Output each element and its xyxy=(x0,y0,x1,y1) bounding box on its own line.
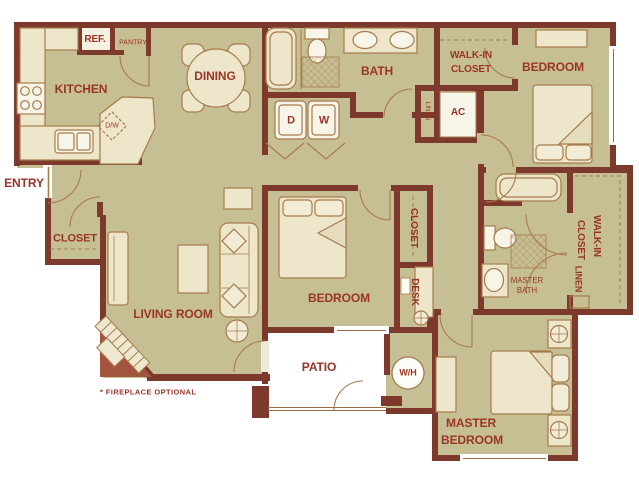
label-bedroom-top: BEDROOM xyxy=(522,61,584,73)
label-bedroom-mid: BEDROOM xyxy=(308,292,370,304)
label-master-linen: LINEN xyxy=(574,266,583,293)
coffee-table-icon xyxy=(178,245,208,293)
pillow-icon xyxy=(552,384,569,411)
stove-icon xyxy=(17,83,45,114)
bath-sink-icon xyxy=(353,32,377,49)
bath-sink-icon xyxy=(485,269,504,292)
label-walkin-top-1: WALK-IN xyxy=(450,51,492,61)
label-patio: PATIO xyxy=(302,361,336,373)
label-closet-entry: CLOSET xyxy=(53,234,97,245)
dresser-icon xyxy=(436,357,456,412)
label-ref: REF. xyxy=(84,35,105,45)
label-water-heater: W/H xyxy=(399,369,416,378)
label-dining: DINING xyxy=(194,70,235,82)
pillow-icon xyxy=(315,200,343,216)
label-dishwasher: D/W xyxy=(105,123,119,130)
chaise-icon xyxy=(108,232,128,305)
label-master-closet-2: CLOSET xyxy=(575,220,585,260)
patio-exit-door xyxy=(334,381,363,410)
label-living-room: LIVING ROOM xyxy=(133,308,213,320)
pillow-icon xyxy=(536,145,563,160)
shower-icon xyxy=(302,57,339,87)
pillow-icon xyxy=(283,200,312,216)
label-washer: W xyxy=(319,116,329,127)
patio-post-right xyxy=(381,396,402,406)
label-master-closet-1: WALK-IN xyxy=(591,215,601,257)
toilet-icon xyxy=(484,226,495,250)
patio-post-left xyxy=(252,386,269,418)
label-entry: ENTRY xyxy=(4,177,44,189)
pillow-icon xyxy=(552,355,569,382)
label-master-bath-1: MASTER xyxy=(511,277,544,285)
label-kitchen: KITCHEN xyxy=(55,83,108,95)
label-master-bath-2: BATH xyxy=(517,287,537,295)
label-walkin-top-2: CLOSET xyxy=(451,65,491,75)
label-linen-top: LINEN xyxy=(424,102,430,120)
label-desk: DESK xyxy=(409,278,419,305)
label-ac: AC xyxy=(451,108,465,118)
toilet-icon xyxy=(305,28,329,39)
label-bath: BATH xyxy=(361,65,393,77)
end-table-icon xyxy=(224,188,252,209)
label-master-bedroom-1: MASTER xyxy=(446,417,496,429)
pillow-icon xyxy=(566,145,591,160)
entry-door-gap xyxy=(43,165,52,198)
label-dryer: D xyxy=(287,116,295,127)
floor-plan: KITCHEN REF. PANTRY DINING BATH WALK-IN … xyxy=(0,0,639,479)
label-pantry: PANTRY xyxy=(119,40,147,47)
dresser-icon xyxy=(536,30,587,47)
label-closet-mid: CLOSET xyxy=(408,208,418,248)
bath-sink-icon xyxy=(390,32,414,49)
label-master-bedroom-2: BEDROOM xyxy=(441,434,503,446)
fireplace-note: * FIREPLACE OPTIONAL xyxy=(100,388,196,396)
